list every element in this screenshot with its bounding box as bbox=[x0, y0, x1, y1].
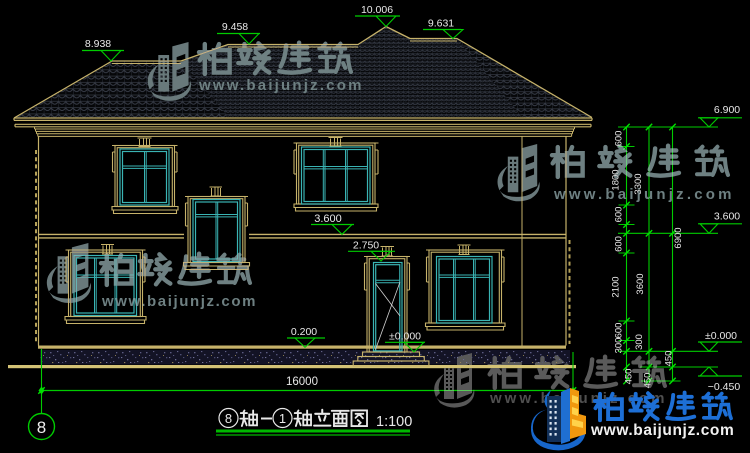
svg-text:300: 300 bbox=[614, 338, 625, 354]
svg-text:9.458: 9.458 bbox=[222, 21, 248, 33]
svg-text:www.baijunjz.com: www.baijunjz.com bbox=[101, 293, 257, 310]
svg-text:600: 600 bbox=[614, 207, 625, 223]
svg-text:8: 8 bbox=[37, 418, 46, 437]
svg-text:www.baijunjz.com: www.baijunjz.com bbox=[198, 77, 364, 94]
svg-text:www.baijunjz.com: www.baijunjz.com bbox=[590, 422, 734, 439]
svg-text:600: 600 bbox=[614, 323, 625, 339]
svg-text:6.900: 6.900 bbox=[714, 104, 740, 116]
svg-text:1:100: 1:100 bbox=[376, 414, 412, 430]
svg-text:3.600: 3.600 bbox=[714, 211, 740, 223]
svg-text:0.200: 0.200 bbox=[291, 326, 317, 338]
svg-text:www.baijunjz.com: www.baijunjz.com bbox=[553, 186, 735, 203]
svg-text:300: 300 bbox=[634, 334, 645, 350]
svg-text:9.631: 9.631 bbox=[428, 18, 454, 30]
svg-text:2100: 2100 bbox=[611, 276, 622, 297]
svg-text:−0.450: −0.450 bbox=[708, 381, 741, 393]
svg-text:600: 600 bbox=[614, 131, 625, 147]
svg-text:8: 8 bbox=[225, 411, 232, 426]
svg-text:1: 1 bbox=[279, 411, 286, 426]
svg-text:10.006: 10.006 bbox=[361, 4, 393, 16]
svg-text:600: 600 bbox=[614, 236, 625, 252]
svg-text:8.938: 8.938 bbox=[85, 38, 111, 50]
svg-text:450: 450 bbox=[664, 351, 675, 367]
svg-text:16000: 16000 bbox=[286, 376, 318, 388]
svg-text:2.750: 2.750 bbox=[353, 240, 379, 252]
svg-text:6900: 6900 bbox=[673, 227, 684, 248]
svg-text:3600: 3600 bbox=[635, 273, 646, 294]
svg-text:3.600: 3.600 bbox=[314, 213, 342, 225]
svg-text:±0.000: ±0.000 bbox=[389, 331, 421, 343]
svg-text:±0.000: ±0.000 bbox=[705, 330, 737, 342]
